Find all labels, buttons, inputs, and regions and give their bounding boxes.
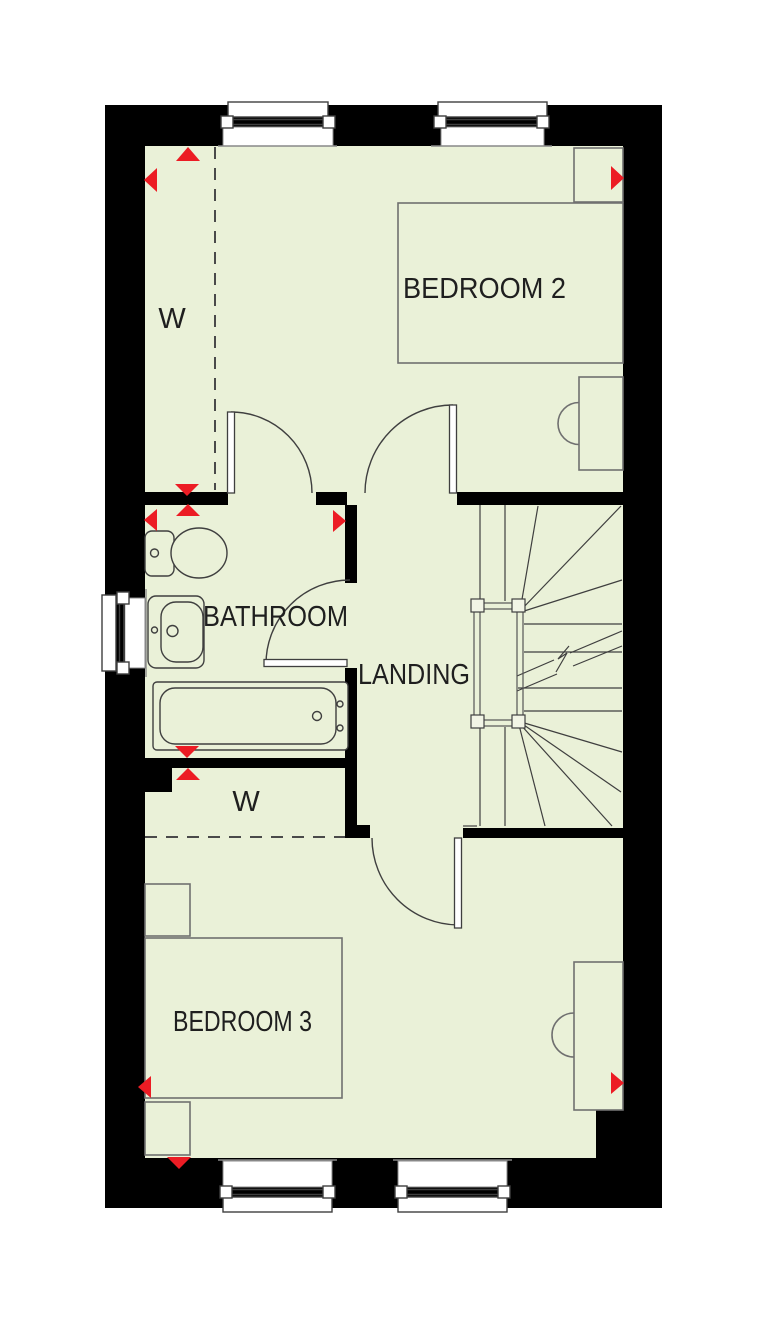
wall-bedroom2-south bbox=[457, 492, 623, 505]
window-bottom-right bbox=[393, 1160, 512, 1212]
label-wardrobe-lower: W bbox=[232, 786, 260, 818]
label-bedroom2: BEDROOM 2 bbox=[403, 273, 566, 305]
wall-stairs-south bbox=[463, 828, 623, 838]
wall-top bbox=[105, 105, 662, 146]
label-landing: LANDING bbox=[358, 659, 470, 691]
window-bottom-left bbox=[218, 1160, 337, 1212]
label-bedroom3: BEDROOM 3 bbox=[173, 1006, 312, 1038]
wall-bathroom-north-mid bbox=[316, 492, 347, 505]
washbasin bbox=[148, 596, 204, 668]
label-wardrobe-top: W bbox=[158, 303, 186, 335]
wall-bathroom-south bbox=[145, 758, 357, 768]
bathtub bbox=[153, 682, 348, 750]
floorplan-page: W BEDROOM 2 BATHROOM LANDING W BEDROOM 3 bbox=[0, 0, 765, 1313]
wall-right bbox=[623, 105, 662, 1208]
wall-bedroom3-door-jamb-left bbox=[345, 825, 370, 838]
window-top-left bbox=[218, 102, 337, 146]
label-bathroom: BATHROOM bbox=[203, 601, 348, 633]
wall-wardrobe-east bbox=[345, 768, 357, 828]
wall-bathroom-east-upper bbox=[345, 505, 357, 583]
floorplan-drawing: W BEDROOM 2 BATHROOM LANDING W BEDROOM 3 bbox=[0, 0, 765, 1313]
window-top-right bbox=[431, 102, 552, 146]
wall-bottom bbox=[105, 1158, 662, 1208]
wall-pier-bottom-right bbox=[596, 1110, 662, 1208]
toilet bbox=[145, 528, 227, 578]
wall-pier-left bbox=[105, 768, 172, 792]
window-bathroom bbox=[102, 589, 146, 677]
